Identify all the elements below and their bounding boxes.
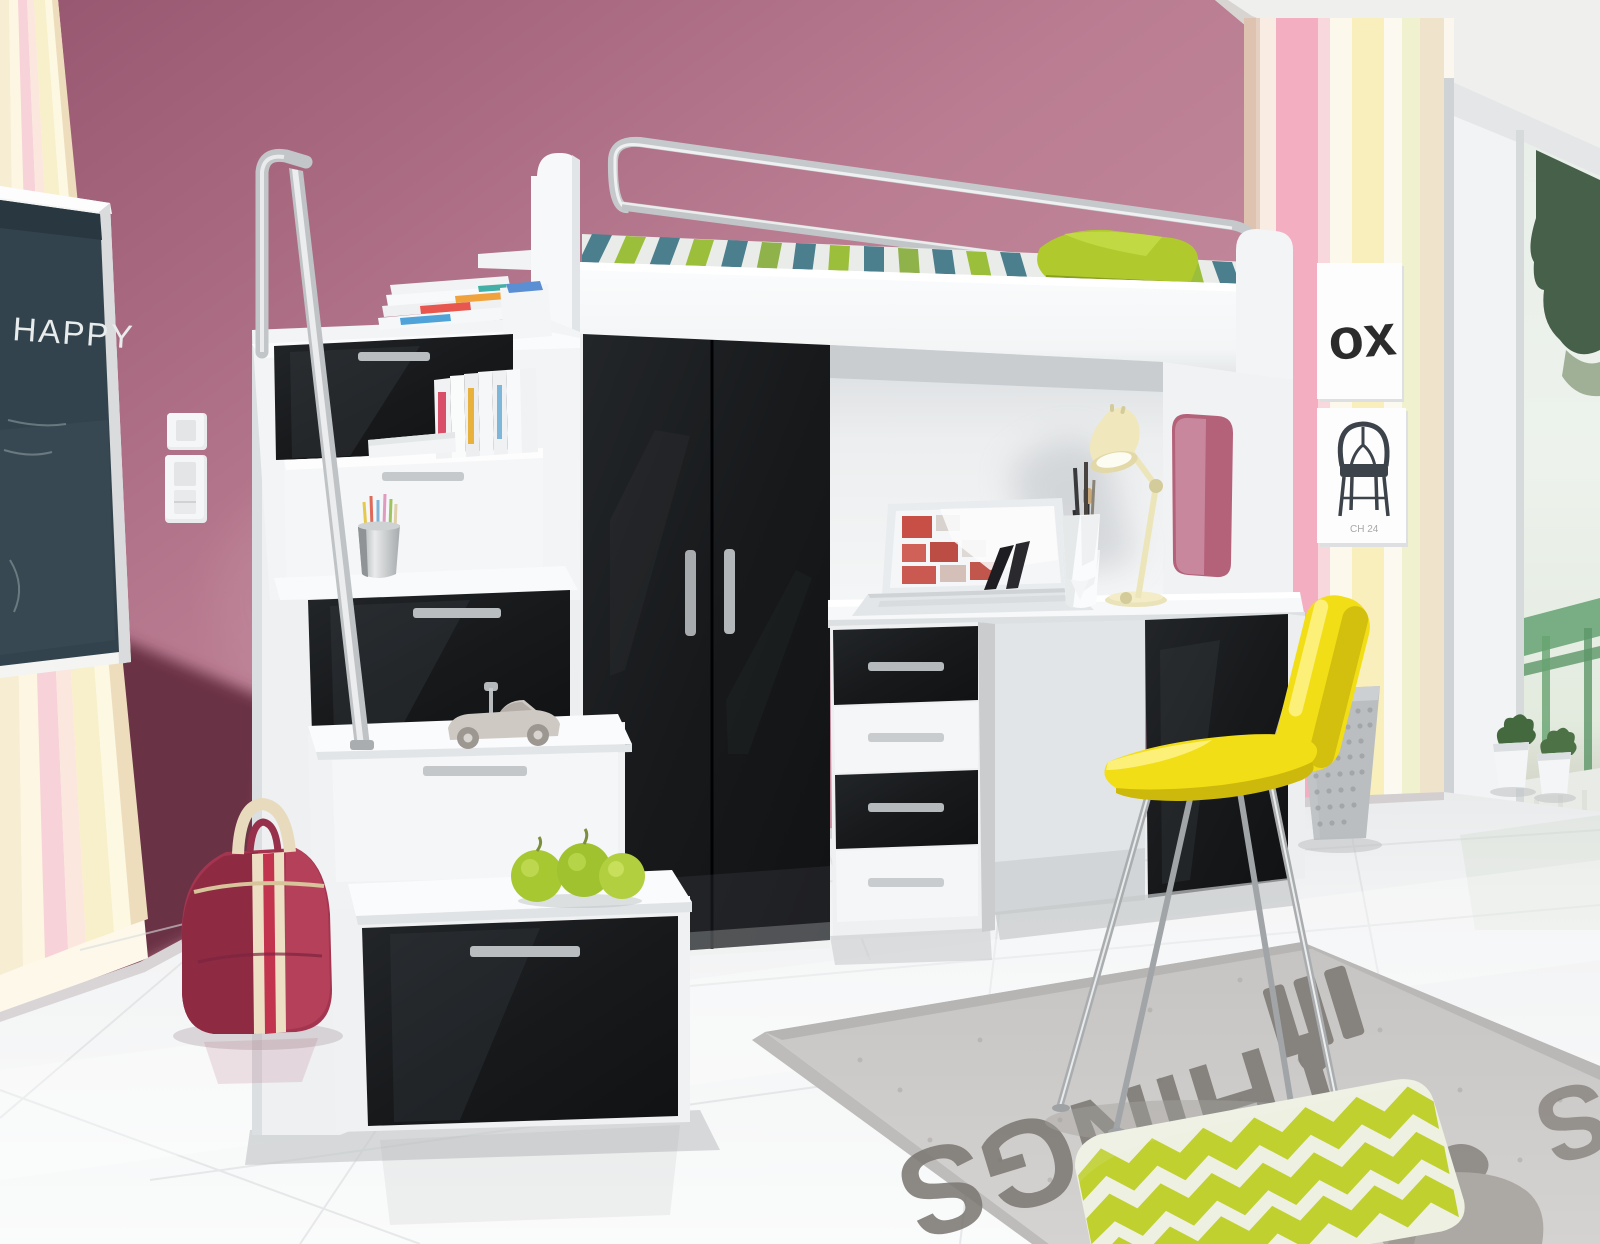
svg-text:ox: ox	[1325, 302, 1398, 373]
svg-text:CH 24: CH 24	[1350, 524, 1379, 535]
